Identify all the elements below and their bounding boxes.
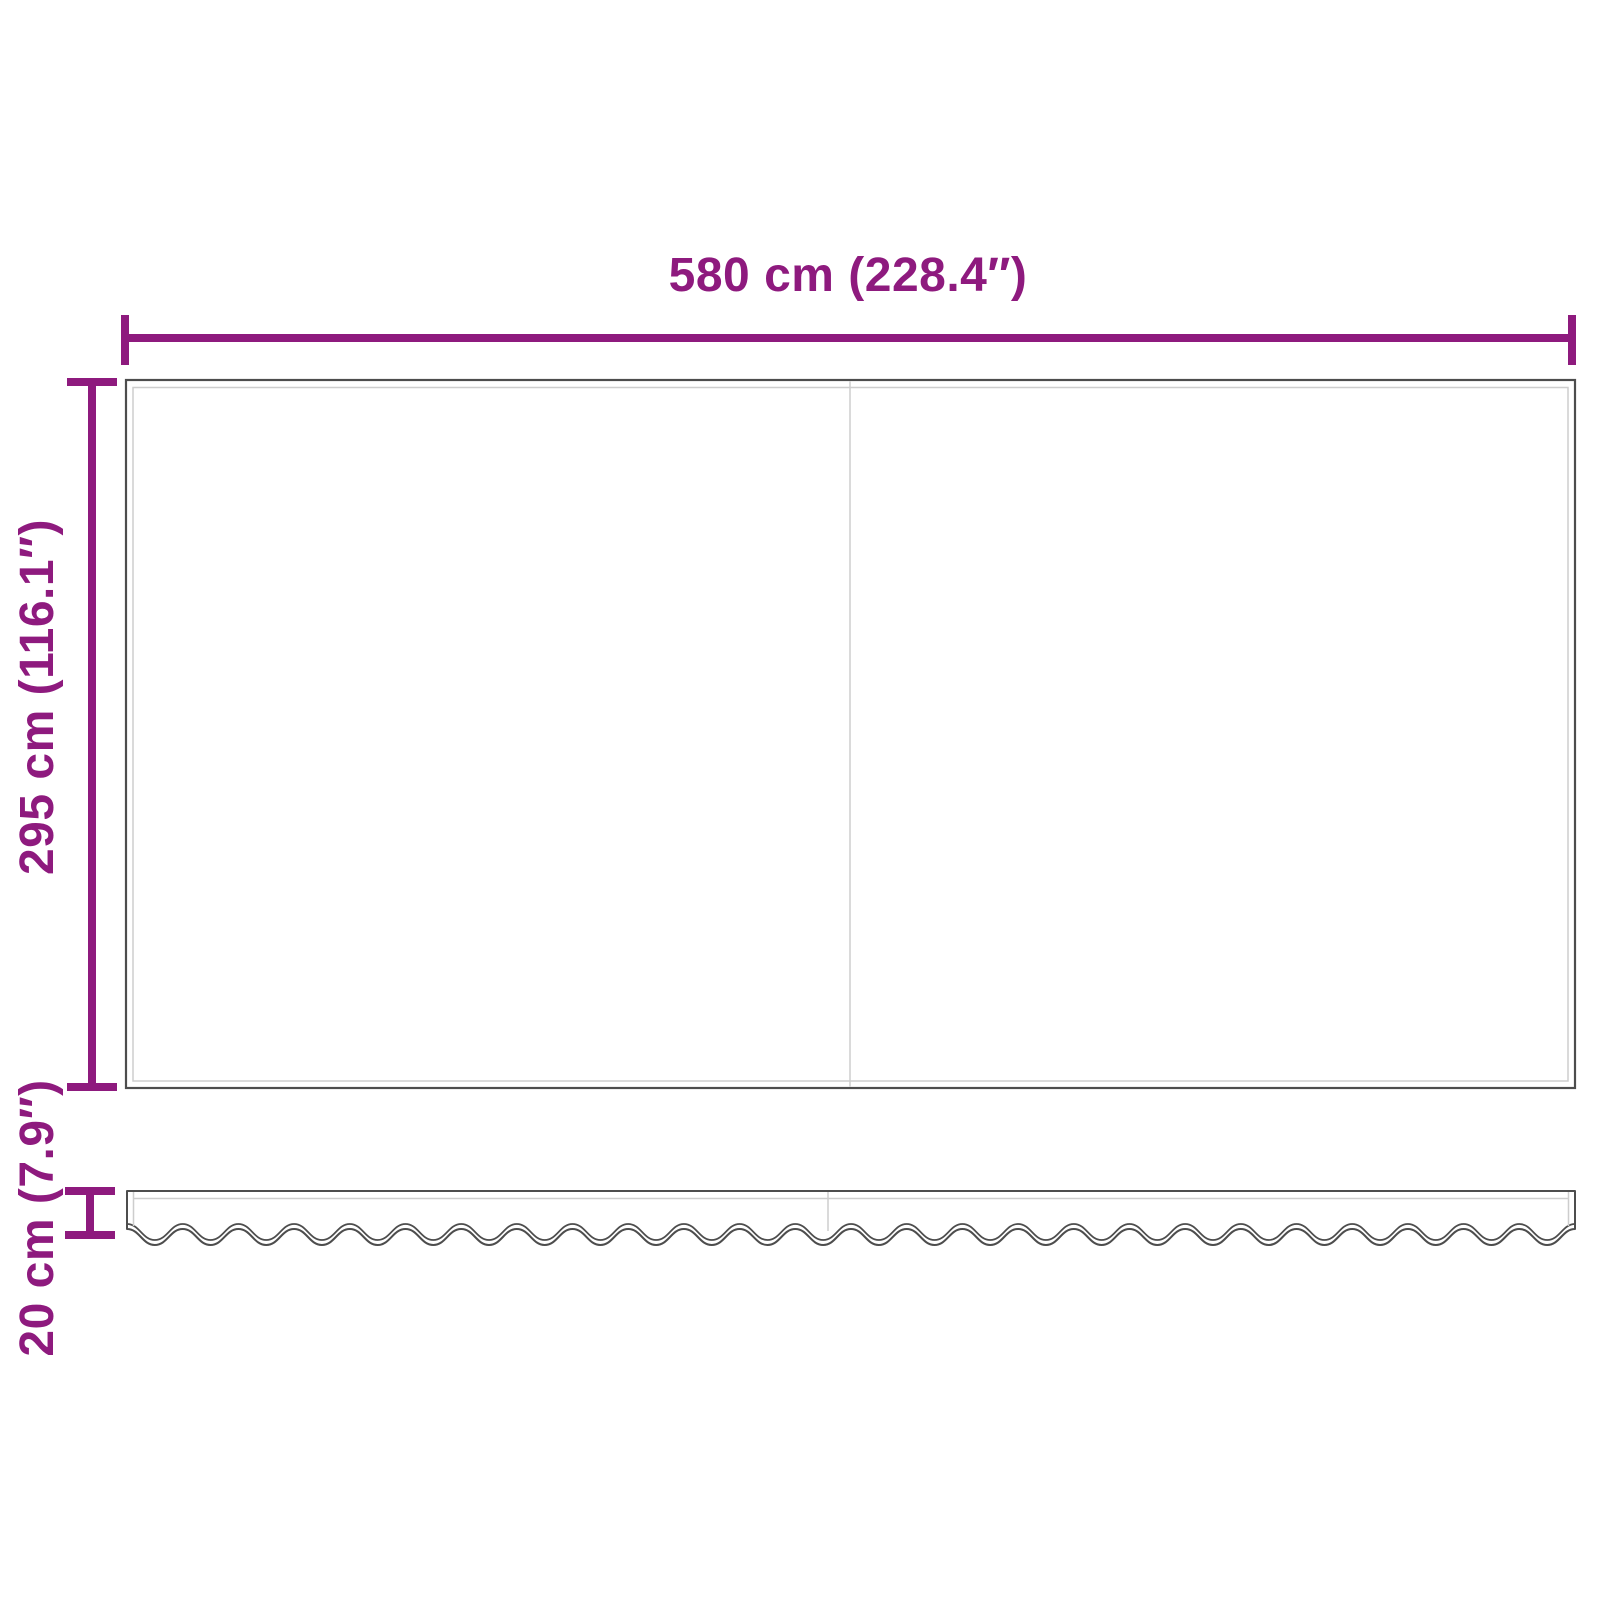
dimension-diagram-svg — [0, 0, 1600, 1600]
awning-fabric-dimension-diagram: 580 cm (228.4″) 295 cm (116.1″) 20 cm (7… — [0, 0, 1600, 1600]
width-dimension-label: 580 cm (228.4″) — [669, 252, 1028, 300]
height-dimension-label: 295 cm (116.1″) — [14, 519, 62, 875]
fabric-panel — [126, 380, 1575, 1088]
width-dimension-line — [125, 315, 1572, 365]
valance-strip — [127, 1191, 1575, 1245]
valance-height-dimension-line — [65, 1191, 115, 1235]
height-dimension-line — [67, 382, 117, 1087]
valance-height-dimension-label: 20 cm (7.9″) — [14, 1079, 62, 1356]
